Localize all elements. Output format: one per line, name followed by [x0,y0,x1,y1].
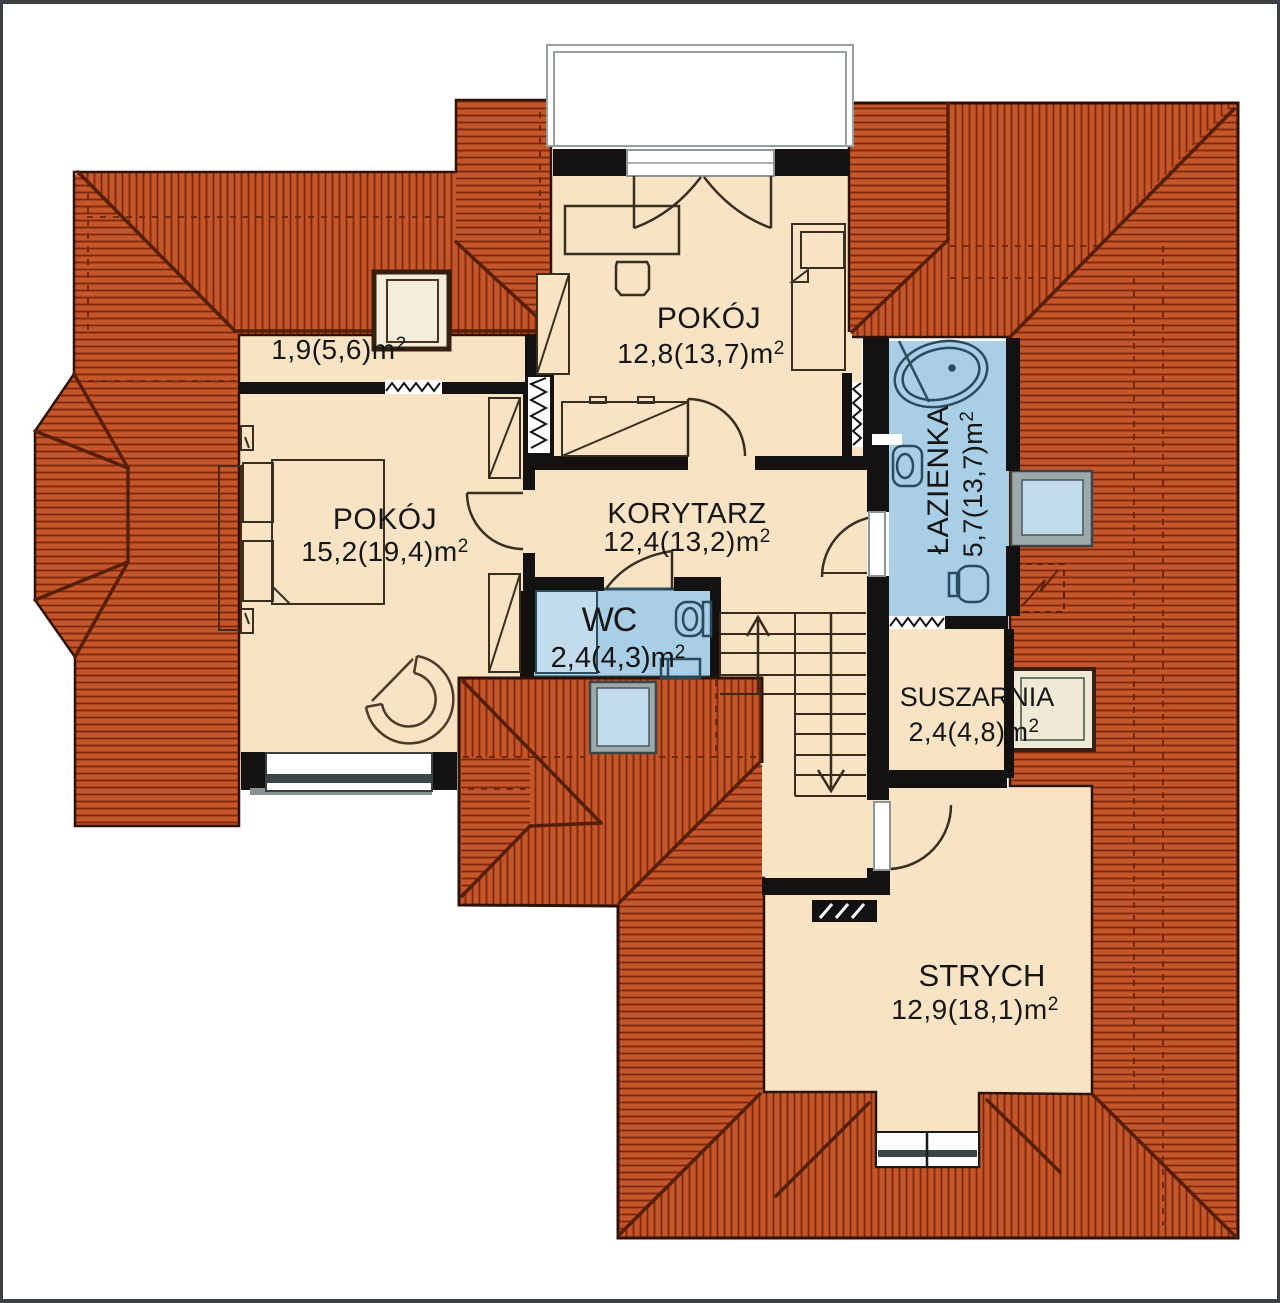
svg-text:ŁAZIENKA: ŁAZIENKA [922,405,955,554]
svg-text:15,2(19,4)m2: 15,2(19,4)m2 [301,536,469,567]
svg-text:POKÓJ: POKÓJ [657,302,761,335]
svg-text:2,4(4,3)m2: 2,4(4,3)m2 [551,642,686,674]
svg-text:1,9(5,6)m2: 1,9(5,6)m2 [271,334,406,365]
svg-text:5,7(13,7)m2: 5,7(13,7)m2 [957,411,988,558]
svg-text:STRYCH: STRYCH [919,958,1046,993]
svg-text:SUSZARNIA: SUSZARNIA [900,682,1055,712]
svg-text:WC: WC [582,601,637,639]
svg-text:12,9(18,1)m2: 12,9(18,1)m2 [891,994,1059,1025]
svg-text:POKÓJ: POKÓJ [333,503,437,536]
svg-text:12,4(13,2)m2: 12,4(13,2)m2 [603,526,771,557]
svg-text:12,8(13,7)m2: 12,8(13,7)m2 [617,338,785,369]
svg-text:2,4(4,8)m2: 2,4(4,8)m2 [908,716,1039,747]
